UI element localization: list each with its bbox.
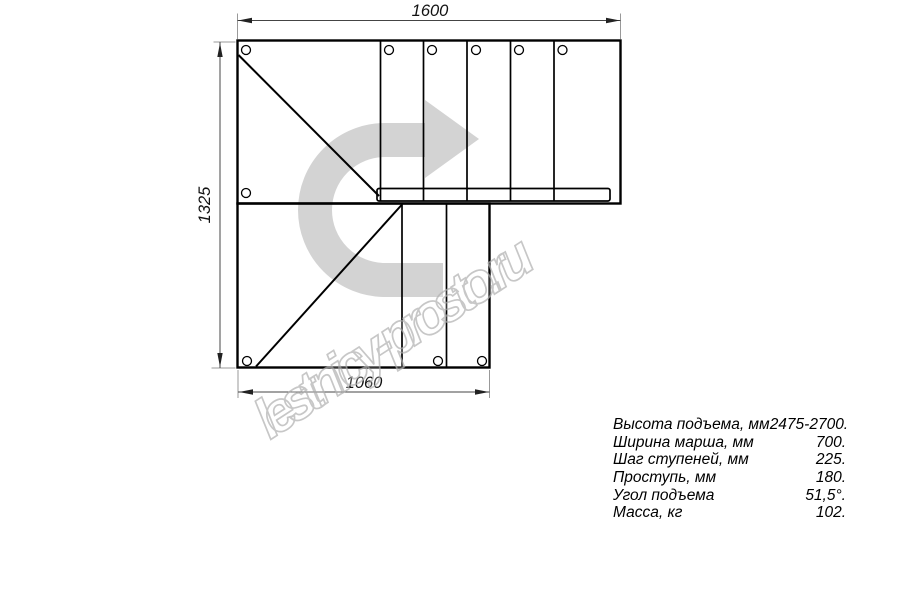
direction-arrow: [315, 100, 479, 280]
spec-row: Проступь, мм 180.: [613, 469, 846, 487]
spec-value: 51,5°.: [805, 487, 846, 505]
spec-label: Угол подъема: [613, 487, 714, 505]
spec-value: 700.: [816, 434, 846, 452]
spec-value: 2475-2700.: [770, 416, 848, 434]
spec-row: Шаг ступеней, мм 225.: [613, 451, 846, 469]
spec-label: Высота подъема, мм: [613, 416, 770, 434]
spec-value: 180.: [816, 469, 846, 487]
watermark-text: lestnicy-prosto.ru: [242, 223, 544, 450]
spec-label: Проступь, мм: [613, 469, 716, 487]
spec-table: Высота подъема, мм 2475-2700. Ширина мар…: [613, 416, 846, 522]
spec-label: Масса, кг: [613, 504, 682, 522]
spec-label: Шаг ступеней, мм: [613, 451, 749, 469]
spec-row: Масса, кг 102.: [613, 504, 846, 522]
upper-riser-lines: [381, 41, 555, 201]
spec-row: Угол подъема 51,5°.: [613, 487, 846, 505]
dim-label-left: 1325: [196, 186, 214, 224]
spec-label: Ширина марша, мм: [613, 434, 754, 452]
stringer-band: [377, 189, 610, 202]
spec-row: Высота подъема, мм 2475-2700.: [613, 416, 846, 434]
spec-value: 225.: [816, 451, 846, 469]
spec-row: Ширина марша, мм 700.: [613, 434, 846, 452]
dim-label-top: 1600: [412, 2, 450, 20]
spec-value: 102.: [816, 504, 846, 522]
blueprint-canvas: 1600 1325 1060 lestnicy-prosto.ru Высота…: [0, 0, 900, 600]
direction-arrowhead: [425, 100, 479, 178]
